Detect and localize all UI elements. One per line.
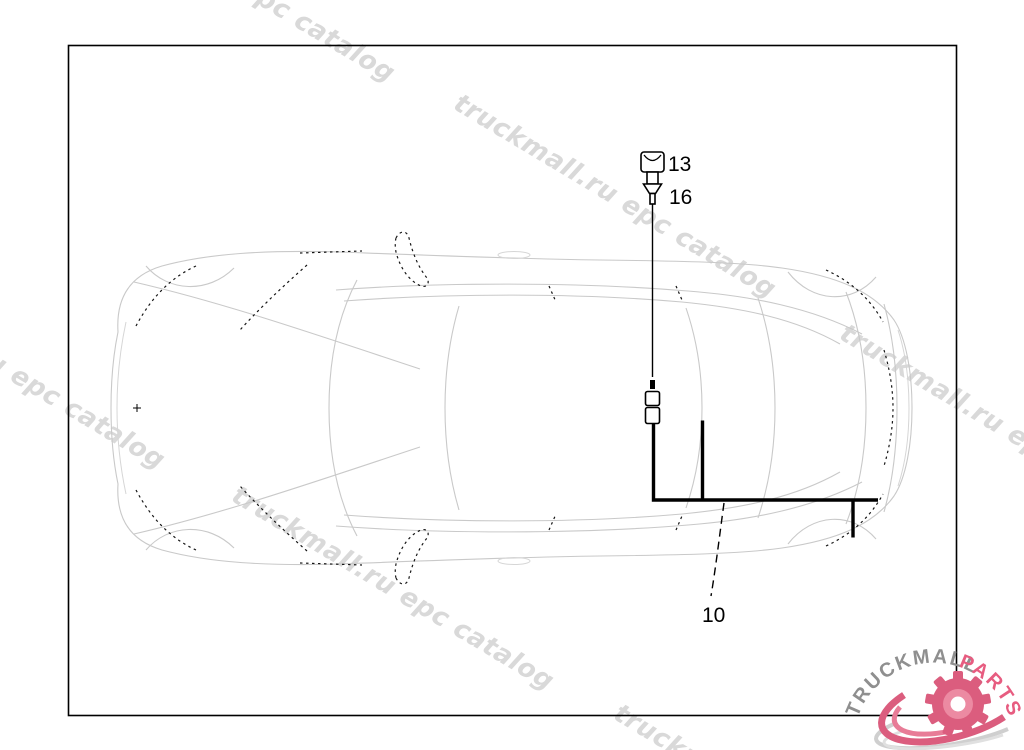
watermark-text: truckmall.ru epc catalog (448, 88, 781, 304)
detail-dashes-roofrail (549, 286, 682, 530)
callout-16-label[interactable]: 16 (669, 186, 692, 209)
watermark-text: truckmall.ru epc catalog (67, 0, 400, 89)
callout-13-label[interactable]: 13 (668, 153, 691, 176)
leader-line-10 (711, 503, 724, 596)
bumper-inner-arcs (117, 322, 909, 494)
connector-13-stem (647, 172, 658, 184)
detail-dashes-rear (826, 270, 893, 546)
car-sill-lines (336, 284, 862, 532)
rear-window-rear-arc (758, 298, 775, 518)
wheel-arch-rear-bottom (788, 519, 876, 544)
catalog-diagram-page: truckmall.ru epc catalog truckmall.ru ep… (0, 0, 1024, 750)
door-handle-bottom (498, 558, 530, 565)
side-mirror-top (395, 232, 428, 286)
brand-logo: TRUCKMALL PARTS (842, 645, 1024, 748)
hood-crease-lines (134, 282, 420, 534)
terminal-16-funnel (644, 184, 662, 194)
roof-front-arc (445, 306, 459, 510)
front-center-cross (133, 404, 141, 412)
watermark-text: truckmall.ru epc catalog (226, 480, 559, 696)
rear-window-arc (686, 308, 702, 508)
watermark-text: truckmall.ru epc catalog (0, 259, 170, 475)
diagram-canvas: truckmall.ru epc catalog truckmall.ru ep… (0, 0, 1024, 750)
windshield-arc (329, 280, 357, 536)
wheel-arch-rear-top (788, 272, 876, 297)
door-handle-top (498, 252, 530, 259)
watermark-text: truckmall.ru epc catalog (834, 318, 1024, 534)
car-top-view-outline (111, 232, 912, 584)
callout-10-label[interactable]: 10 (702, 604, 725, 627)
gear-hole (951, 697, 966, 712)
detail-dashes-topedge (300, 251, 362, 565)
watermark-layer: truckmall.ru epc catalog truckmall.ru ep… (0, 0, 1024, 750)
terminal-16-stem (650, 194, 655, 205)
connector-13-icon (641, 152, 664, 184)
car-body-outline (111, 251, 912, 564)
inline-connector-block-upper (646, 392, 660, 406)
wire-splice-mark (650, 380, 655, 389)
inline-connector-block-lower (646, 408, 660, 424)
